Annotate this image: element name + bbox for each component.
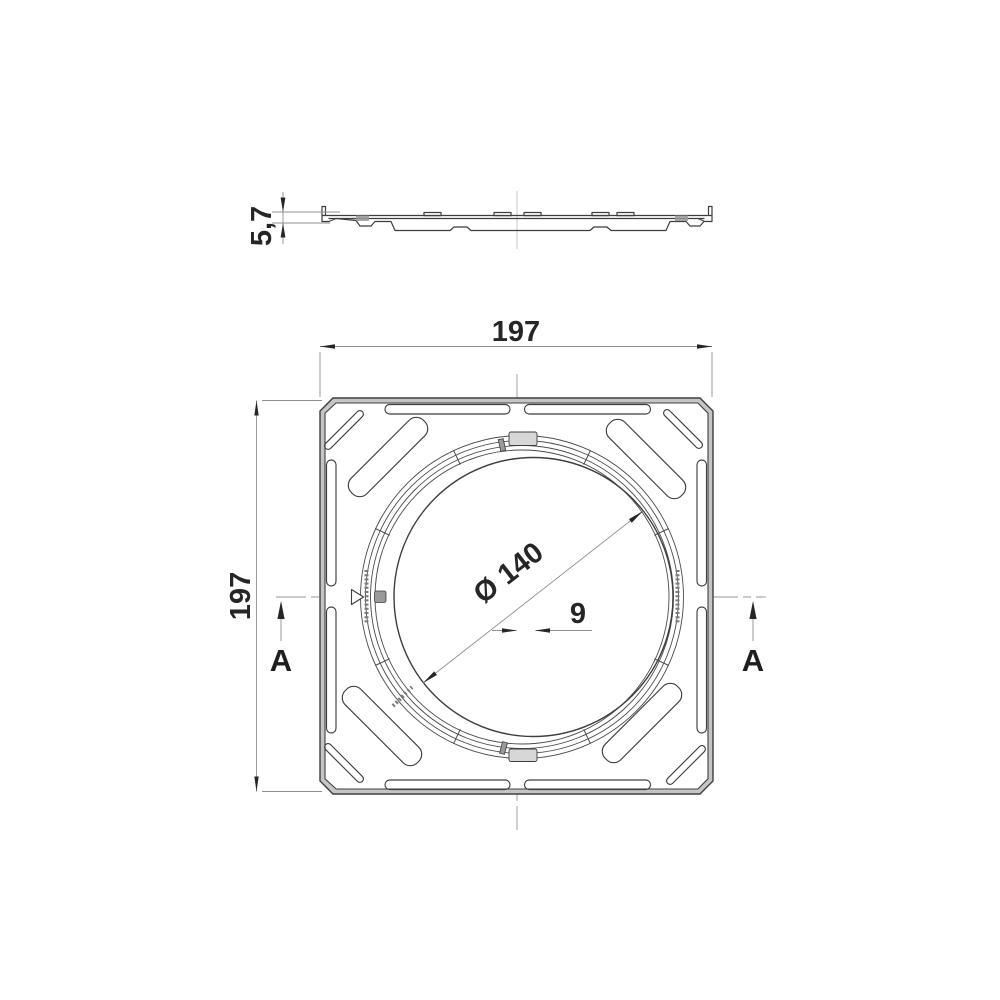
profile-underside <box>336 219 704 231</box>
arrow-left-icon <box>320 344 335 348</box>
section-view: 5,7 <box>246 191 712 249</box>
section-arrow-icon <box>749 601 756 619</box>
profile-tab <box>617 213 634 216</box>
rim-tab-top <box>509 432 537 446</box>
dim-thickness: 5,7 <box>246 192 340 246</box>
rim-lug-left <box>375 591 387 603</box>
section-arrow-icon <box>277 601 284 619</box>
offset-dimension-label: 9 <box>570 598 586 630</box>
rim-tab-bottom <box>509 749 537 762</box>
arrow-up-icon <box>281 223 286 238</box>
arrow-down-icon <box>254 777 258 792</box>
profile-end-detail <box>356 216 369 222</box>
height-dimension-label: 197 <box>225 572 257 620</box>
section-label-right: A <box>742 643 764 678</box>
dim-width: 197 <box>320 316 712 397</box>
plan-view: 197 197 Ø 140 9 <box>225 316 766 830</box>
thickness-dimension-label: 5,7 <box>246 206 278 246</box>
profile-tab <box>524 213 541 216</box>
profile-end-detail <box>675 216 688 222</box>
profile-tab <box>494 213 511 216</box>
profile-tab <box>424 213 441 216</box>
technical-drawing-page: 5,7 <box>0 0 1000 1000</box>
profile-tab <box>592 213 609 216</box>
section-label-left: A <box>270 643 292 678</box>
profile-left-lip <box>322 207 336 222</box>
arrow-down-icon <box>281 198 286 213</box>
section-marker-left: A <box>270 601 292 678</box>
width-dimension-label: 197 <box>492 316 540 348</box>
technical-drawing: 5,7 <box>0 0 1000 1000</box>
section-marker-right: A <box>742 601 764 678</box>
dim-height: 197 <box>225 401 322 792</box>
arrow-up-icon <box>254 401 258 416</box>
arrow-right-icon <box>697 344 712 348</box>
profile-right-lip <box>698 207 712 222</box>
